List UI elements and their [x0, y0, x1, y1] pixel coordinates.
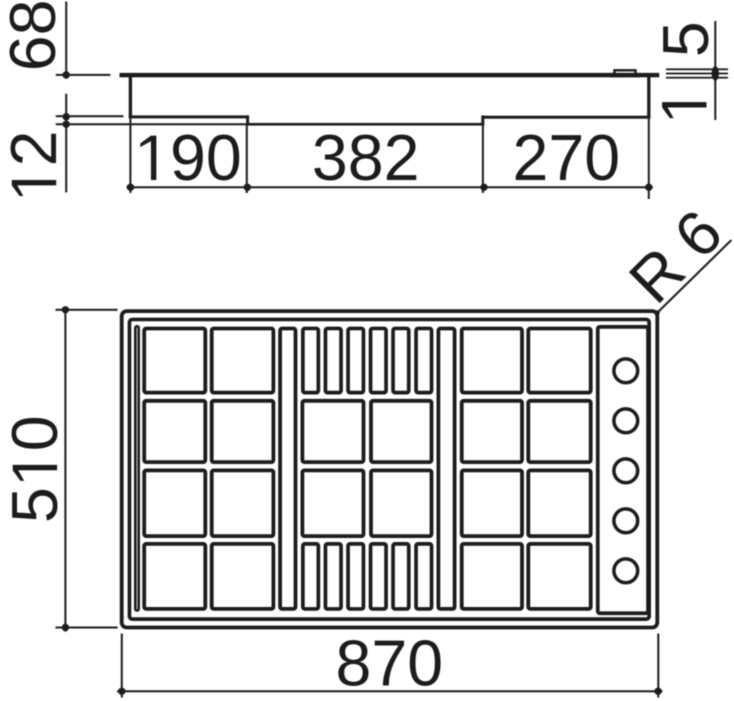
svg-text:5: 5 — [650, 21, 722, 57]
svg-text:0: 0 — [0, 415, 71, 451]
svg-text:68: 68 — [0, 0, 69, 71]
svg-text:2: 2 — [0, 130, 70, 166]
svg-text:382: 382 — [312, 122, 420, 194]
svg-text:270: 270 — [512, 122, 620, 194]
svg-text:90: 90 — [170, 122, 242, 194]
svg-text:5: 5 — [0, 487, 71, 523]
svg-text:870: 870 — [335, 628, 443, 700]
